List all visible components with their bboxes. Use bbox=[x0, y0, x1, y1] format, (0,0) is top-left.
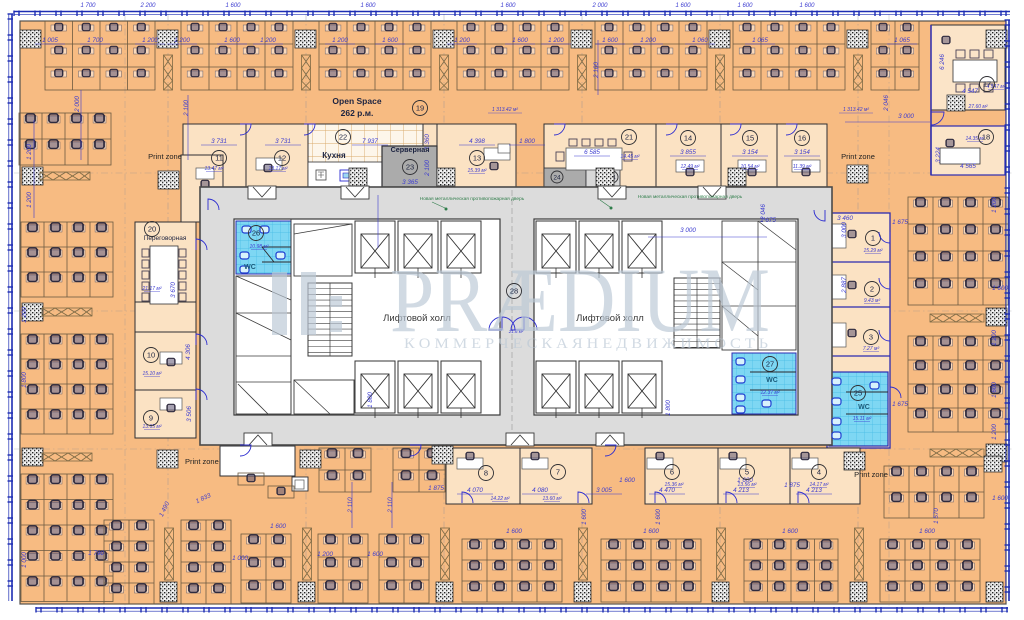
svg-text:WC: WC bbox=[858, 404, 870, 411]
svg-text:15.39 м²: 15.39 м² bbox=[468, 168, 487, 174]
svg-text:12: 12 bbox=[278, 154, 286, 163]
svg-text:1 200: 1 200 bbox=[26, 192, 33, 208]
svg-text:1 600: 1 600 bbox=[270, 523, 286, 530]
svg-text:3 005: 3 005 bbox=[596, 487, 612, 494]
svg-text:23: 23 bbox=[406, 163, 414, 172]
svg-text:4 306: 4 306 bbox=[185, 344, 192, 360]
svg-text:1 005: 1 005 bbox=[42, 37, 58, 44]
svg-text:12.49 м²: 12.49 м² bbox=[681, 164, 700, 170]
svg-text:3 670: 3 670 bbox=[170, 282, 177, 298]
svg-text:1 800: 1 800 bbox=[519, 138, 535, 145]
svg-text:13.47 м²: 13.47 м² bbox=[205, 166, 224, 172]
svg-text:8: 8 bbox=[484, 469, 488, 478]
svg-text:13.17 м²: 13.17 м² bbox=[269, 166, 288, 172]
svg-text:17: 17 bbox=[983, 80, 991, 89]
svg-text:15.29 м²: 15.29 м² bbox=[864, 248, 883, 254]
svg-text:1 600: 1 600 bbox=[382, 37, 398, 44]
svg-text:1 600: 1 600 bbox=[675, 3, 691, 9]
svg-text:6 246: 6 246 bbox=[939, 54, 946, 70]
svg-text:4 565: 4 565 bbox=[960, 163, 976, 170]
svg-text:Новая металлическая противопож: Новая металлическая противопожарная двер… bbox=[638, 194, 743, 200]
svg-text:27.60 м²: 27.60 м² bbox=[968, 104, 988, 110]
svg-text:9: 9 bbox=[149, 414, 153, 423]
svg-text:1 600: 1 600 bbox=[655, 509, 662, 525]
svg-text:1 200: 1 200 bbox=[454, 37, 470, 44]
svg-text:2 000: 2 000 bbox=[74, 96, 81, 113]
svg-text:1 700: 1 700 bbox=[80, 3, 96, 9]
svg-text:26: 26 bbox=[252, 229, 260, 238]
svg-text:3 365: 3 365 bbox=[402, 179, 418, 186]
svg-text:1 200: 1 200 bbox=[174, 37, 190, 44]
svg-text:21.17 м²: 21.17 м² bbox=[142, 286, 162, 292]
svg-text:2: 2 bbox=[870, 285, 874, 294]
svg-text:Print zone: Print zone bbox=[148, 152, 182, 161]
svg-text:Кухня: Кухня bbox=[322, 151, 346, 160]
svg-text:Open Space: Open Space bbox=[332, 96, 381, 106]
svg-text:1 200: 1 200 bbox=[991, 424, 998, 440]
svg-text:28: 28 bbox=[510, 287, 518, 296]
svg-text:2 046: 2 046 bbox=[883, 95, 890, 112]
svg-text:1 200: 1 200 bbox=[260, 37, 276, 44]
svg-text:12.37 м²: 12.37 м² bbox=[761, 390, 780, 396]
svg-text:2 100: 2 100 bbox=[593, 62, 600, 79]
svg-text:1 600: 1 600 bbox=[737, 3, 753, 9]
svg-text:14.17 м²: 14.17 м² bbox=[810, 482, 829, 488]
svg-text:1 600: 1 600 bbox=[224, 37, 240, 44]
svg-text:1 600: 1 600 bbox=[500, 3, 516, 9]
svg-text:3 224: 3 224 bbox=[935, 147, 942, 163]
svg-text:15: 15 bbox=[746, 134, 754, 143]
svg-text:1 200: 1 200 bbox=[640, 37, 656, 44]
svg-text:1 600: 1 600 bbox=[512, 37, 528, 44]
svg-text:1 200: 1 200 bbox=[991, 197, 998, 213]
svg-text:3 000: 3 000 bbox=[841, 222, 848, 238]
svg-text:5: 5 bbox=[745, 468, 749, 477]
svg-text:1 000: 1 000 bbox=[21, 552, 28, 568]
svg-text:Новая металлическая противопож: Новая металлическая противопожарная двер… bbox=[420, 196, 525, 202]
svg-text:1 600: 1 600 bbox=[367, 551, 383, 558]
svg-text:1 060: 1 060 bbox=[692, 37, 708, 44]
svg-text:21: 21 bbox=[625, 133, 633, 142]
svg-text:13: 13 bbox=[473, 154, 481, 163]
svg-text:1 200: 1 200 bbox=[317, 551, 333, 558]
svg-text:15.36 м²: 15.36 м² bbox=[665, 482, 684, 488]
svg-text:262 р.м.: 262 р.м. bbox=[341, 108, 374, 118]
svg-text:1 000: 1 000 bbox=[232, 555, 248, 562]
svg-text:4 213: 4 213 bbox=[806, 487, 822, 494]
svg-text:25: 25 bbox=[854, 389, 862, 398]
svg-text:7.27 м²: 7.27 м² bbox=[863, 346, 880, 352]
svg-text:1 200: 1 200 bbox=[548, 37, 564, 44]
svg-text:Print zone: Print zone bbox=[185, 457, 219, 466]
svg-text:15.11 м²: 15.11 м² bbox=[853, 416, 872, 422]
svg-text:1 200: 1 200 bbox=[991, 330, 998, 346]
svg-text:1 065: 1 065 bbox=[752, 37, 768, 44]
svg-text:2 200: 2 200 bbox=[139, 3, 156, 9]
svg-text:WC: WC bbox=[766, 377, 778, 384]
svg-text:1 600: 1 600 bbox=[782, 528, 798, 535]
svg-text:20: 20 bbox=[148, 225, 156, 234]
svg-text:1 600: 1 600 bbox=[991, 382, 998, 398]
svg-text:1 875: 1 875 bbox=[784, 482, 800, 489]
svg-text:1 800: 1 800 bbox=[21, 372, 28, 388]
svg-text:1 600: 1 600 bbox=[619, 477, 635, 484]
svg-text:11: 11 bbox=[215, 154, 223, 163]
svg-text:2 046: 2 046 bbox=[760, 204, 767, 221]
svg-text:К О М М Е Р Ч Е С К А Я Н Е: К О М М Е Р Ч Е С К А Я Н Е Д В И Ж И М … bbox=[404, 336, 768, 352]
svg-text:10.98 м²: 10.98 м² bbox=[250, 244, 269, 250]
svg-text:3 000: 3 000 bbox=[898, 113, 914, 120]
svg-text:1 600: 1 600 bbox=[360, 3, 376, 9]
svg-text:1 600: 1 600 bbox=[602, 37, 618, 44]
svg-text:2 000: 2 000 bbox=[591, 3, 608, 9]
svg-text:1 700: 1 700 bbox=[87, 37, 103, 44]
svg-text:1 600: 1 600 bbox=[506, 528, 522, 535]
svg-text:3 154: 3 154 bbox=[742, 149, 758, 156]
svg-text:1 065: 1 065 bbox=[894, 37, 910, 44]
svg-text:9.43 м²: 9.43 м² bbox=[864, 298, 881, 304]
svg-text:2 110: 2 110 bbox=[387, 497, 394, 514]
svg-text:3 000: 3 000 bbox=[680, 227, 696, 234]
svg-text:2 887: 2 887 bbox=[841, 277, 848, 294]
svg-text:1: 1 bbox=[871, 234, 875, 243]
svg-text:1 200: 1 200 bbox=[26, 144, 33, 160]
svg-text:2 100: 2 100 bbox=[183, 100, 190, 117]
svg-text:16: 16 bbox=[798, 134, 806, 143]
svg-text:7: 7 bbox=[556, 468, 560, 477]
svg-text:1 200: 1 200 bbox=[142, 37, 158, 44]
svg-text:7 937: 7 937 bbox=[362, 138, 378, 145]
svg-text:3 460: 3 460 bbox=[837, 215, 853, 222]
svg-text:10: 10 bbox=[147, 351, 155, 360]
svg-text:4 080: 4 080 bbox=[532, 487, 548, 494]
svg-text:1 600: 1 600 bbox=[919, 528, 935, 535]
svg-text:WC: WC bbox=[244, 264, 256, 271]
svg-text:1 600: 1 600 bbox=[581, 509, 588, 525]
svg-text:1 313.42 м²: 1 313.42 м² bbox=[492, 107, 518, 113]
svg-text:1 313.42 м²: 1 313.42 м² bbox=[843, 107, 869, 113]
svg-text:4 398: 4 398 bbox=[469, 138, 485, 145]
svg-text:1 600: 1 600 bbox=[225, 3, 241, 9]
svg-text:27: 27 bbox=[766, 360, 774, 369]
svg-text:2 100: 2 100 bbox=[424, 160, 431, 177]
svg-text:1 600: 1 600 bbox=[643, 528, 659, 535]
svg-text:4 547: 4 547 bbox=[962, 88, 978, 95]
svg-text:18: 18 bbox=[982, 133, 990, 142]
svg-text:1 200: 1 200 bbox=[21, 307, 28, 323]
svg-text:4 213: 4 213 bbox=[733, 487, 749, 494]
svg-text:1 675: 1 675 bbox=[892, 219, 908, 226]
svg-text:3 855: 3 855 bbox=[680, 149, 696, 156]
svg-text:1 675: 1 675 bbox=[892, 401, 908, 408]
svg-text:3: 3 bbox=[869, 333, 873, 342]
svg-text:1 800: 1 800 bbox=[665, 400, 672, 416]
svg-text:1 875: 1 875 bbox=[428, 485, 444, 492]
svg-text:Print zone: Print zone bbox=[841, 152, 875, 161]
svg-text:19: 19 bbox=[416, 104, 424, 113]
svg-text:11.39 м²: 11.39 м² bbox=[793, 164, 812, 170]
svg-text:1 600: 1 600 bbox=[992, 495, 1008, 502]
svg-text:3 731: 3 731 bbox=[211, 138, 227, 145]
svg-text:3 506: 3 506 bbox=[186, 406, 193, 422]
svg-text:3 154: 3 154 bbox=[794, 149, 810, 156]
svg-text:4: 4 bbox=[817, 468, 821, 477]
svg-text:22: 22 bbox=[339, 133, 347, 142]
svg-text:4 470: 4 470 bbox=[659, 487, 675, 494]
svg-text:6: 6 bbox=[670, 468, 674, 477]
svg-text:Print zone: Print zone bbox=[854, 470, 888, 479]
svg-text:1 790: 1 790 bbox=[88, 550, 104, 557]
svg-text:1 570: 1 570 bbox=[933, 508, 940, 524]
svg-text:10.54 м²: 10.54 м² bbox=[741, 164, 760, 170]
svg-text:14.45 м²: 14.45 м² bbox=[621, 154, 640, 160]
svg-text:1 200: 1 200 bbox=[332, 37, 348, 44]
svg-text:3 731: 3 731 bbox=[275, 138, 291, 145]
svg-text:1 600: 1 600 bbox=[799, 3, 815, 9]
svg-text:13.56 м²: 13.56 м² bbox=[738, 482, 757, 488]
svg-text:14: 14 bbox=[684, 134, 692, 143]
svg-text:2 110: 2 110 bbox=[347, 497, 354, 514]
svg-text:24: 24 bbox=[553, 175, 561, 182]
svg-text:14.22 м²: 14.22 м² bbox=[491, 496, 510, 502]
svg-text:4 070: 4 070 bbox=[467, 487, 483, 494]
svg-text:13.65 м²: 13.65 м² bbox=[143, 424, 162, 430]
svg-text:1 600: 1 600 bbox=[992, 285, 1008, 292]
svg-text:13.60 м²: 13.60 м² bbox=[543, 496, 562, 502]
svg-text:Серверная: Серверная bbox=[391, 145, 430, 154]
svg-text:15.10 м²: 15.10 м² bbox=[143, 371, 162, 377]
svg-text:1 800: 1 800 bbox=[367, 392, 374, 408]
svg-text:6 585: 6 585 bbox=[584, 149, 600, 156]
